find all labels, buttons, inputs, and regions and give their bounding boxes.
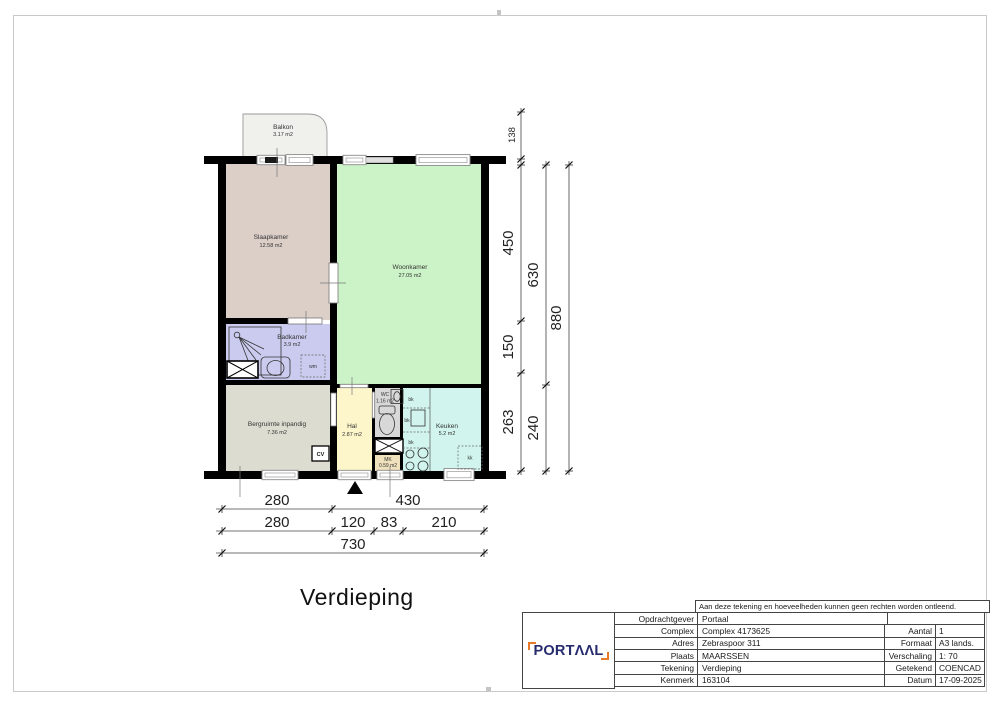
dim-450: 450 [500,230,517,255]
room-area: 27.05 m2 [399,273,422,279]
room-slaapkamer [226,164,330,320]
dim-630: 630 [525,262,542,287]
room-area: 1.16 m2 [376,399,394,405]
logo-text: PORTΛΛL [534,643,604,659]
shaft [375,439,403,453]
room-label: Bergruimte inpandig [248,421,307,428]
dim-240: 240 [525,415,542,440]
field-value: Verdieping [697,662,884,673]
door-wc [372,392,374,418]
title-block: Aan deze tekening en hoeveelheden kunnen… [522,600,986,688]
bk-label: bk [408,397,414,403]
field-value: A3 lands. [935,638,984,649]
table-row: Opdrachtgever Portaal [615,613,984,625]
dim-263: 263 [500,409,517,434]
field-value: 163104 [697,675,884,686]
field-label: Opdrachtgever [615,614,697,624]
table-row: Adres Zebraspoor 311 Formaat A3 lands. [615,638,984,650]
field-value: MAARSSEN [697,650,884,661]
empty-cell [887,613,984,624]
field-value: COENCAD [935,662,984,673]
field-label: Plaats [615,651,697,661]
room-area: 12.58 m2 [260,243,283,249]
room-label: WC [381,392,390,398]
field-value: Portaal [697,613,887,624]
room-area: 5.2 m2 [439,431,456,437]
cv-unit: CV [312,446,329,461]
dim-150: 150 [500,334,517,359]
room-area: 3.17 m2 [273,132,293,138]
title-block-table: Opdrachtgever Portaal Complex Complex 41… [614,612,985,687]
dimensions-right: 138 450 150 263 630 240 880 [500,108,573,475]
room-label: Badkamer [277,334,307,341]
field-label: Verschaling [884,650,935,661]
field-label: Kenmerk [615,675,697,685]
dim-730: 730 [340,536,365,553]
kk-label: kk [468,456,474,462]
field-label: Tekening [615,663,697,673]
field-value: Complex 4173625 [697,625,884,636]
logo-bracket-icon [601,652,609,660]
dim-138: 138 [507,127,518,143]
field-value: 1: 70 [935,650,984,661]
dim-210: 210 [431,514,456,531]
cv-label: CV [317,452,325,458]
room-label: Balkon [273,124,293,131]
dim-280a: 280 [264,492,289,509]
dim-430: 430 [395,492,420,509]
wm-label: wm [309,364,317,370]
bk-label: bk [408,440,414,446]
room-label: Keuken [436,423,458,430]
field-label: Formaat [884,638,935,649]
table-row: Complex Complex 4173625 Aantal 1 [615,625,984,637]
field-label: Datum [884,675,935,686]
logo-cell: PORTΛΛL [522,612,615,689]
entrance-arrow-icon [347,481,363,494]
field-value: 1 [935,625,984,636]
field-value: 17-09-2025 [935,675,984,686]
table-row: Kenmerk 163104 Datum 17-09-2025 [615,675,984,686]
entrance-door [338,470,371,479]
room-label: Slaapkamer [254,234,290,241]
field-label: Adres [615,638,697,648]
drawing-title: Verdieping [300,584,414,611]
door-bergruimte [331,393,336,426]
room-label: Hal [347,423,357,430]
bk-label: bk [404,418,410,424]
field-label: Complex [615,626,697,636]
table-row: Tekening Verdieping Getekend COENCAD [615,662,984,674]
field-value: Zebraspoor 311 [697,638,884,649]
dim-83: 83 [381,514,398,531]
balcony-door-panel [265,157,278,163]
room-balkon: Balkon 3.17 m2 [243,114,327,160]
room-area: 2.87 m2 [342,432,362,438]
field-label: Getekend [884,662,935,673]
dim-880: 880 [548,305,565,330]
door-badkamer [288,318,322,324]
dim-120: 120 [340,514,365,531]
portaal-logo: PORTΛΛL [523,613,614,688]
field-label: Aantal [884,625,935,636]
room-area: 0.59 m2 [379,463,397,469]
room-label: Woonkamer [393,264,429,271]
room-area: 3.9 m2 [284,342,301,348]
dimensions-bottom: 280 430 280 120 83 210 730 [216,492,488,557]
door-hal-woonkamer [340,384,368,387]
table-row: Plaats MAARSSEN Verschaling 1: 70 [615,650,984,662]
dim-280b: 280 [264,514,289,531]
windows-top [257,155,470,166]
room-area: 7.36 m2 [267,430,287,436]
